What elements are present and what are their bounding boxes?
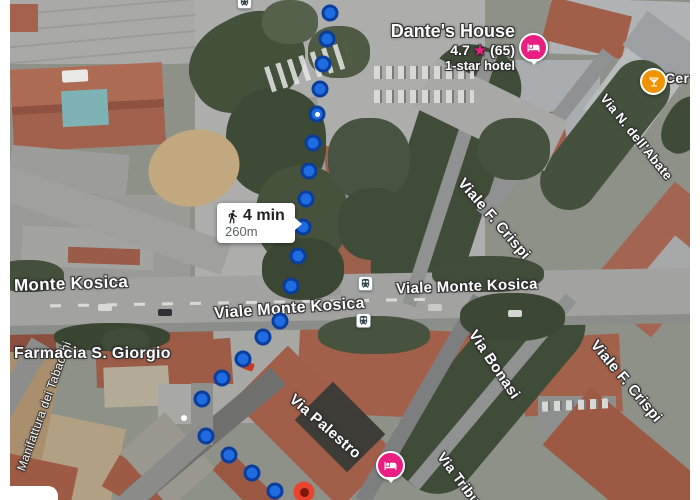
parking-cars xyxy=(374,90,474,103)
map-canvas[interactable]: Monte Kosica Viale Monte Kosica Viale Mo… xyxy=(10,0,690,500)
bed-icon xyxy=(384,459,397,472)
building-red-roof xyxy=(10,4,38,32)
route-duration: 4 min xyxy=(243,207,285,225)
route-distance: 260m xyxy=(225,225,285,239)
building-red-roof xyxy=(212,451,295,500)
train-icon xyxy=(360,278,371,289)
destination-marker[interactable] xyxy=(294,482,315,500)
street-label-monte-kosica: Monte Kosica xyxy=(14,272,129,296)
bar-pin-cer[interactable] xyxy=(640,68,667,95)
tree-cluster xyxy=(318,316,430,354)
car xyxy=(158,309,172,316)
van xyxy=(62,69,89,82)
tree-cluster xyxy=(262,0,318,44)
poi-label-cer[interactable]: Cer xyxy=(665,70,689,86)
transit-stop-icon[interactable] xyxy=(356,313,371,328)
walking-person-icon xyxy=(225,209,240,224)
building-teal-roof xyxy=(61,89,109,127)
train-icon xyxy=(358,315,369,326)
hotel-pin-via-palestro[interactable] xyxy=(376,451,405,480)
poi-label-farmacia-s-giorgio[interactable]: Farmacia S. Giorgio xyxy=(14,345,171,363)
poi-rating-line: 4.7 ★ (65) xyxy=(330,42,515,59)
partial-white-chip xyxy=(10,486,58,500)
poi-label-dantes-house[interactable]: Dante's House 4.7 ★ (65) 1-star hotel xyxy=(330,21,515,74)
tree-cluster xyxy=(478,118,550,180)
transit-stop-icon[interactable] xyxy=(358,276,373,291)
train-icon xyxy=(239,0,250,7)
building-red-roof xyxy=(68,247,141,266)
tooltip-duration-row: 4 min xyxy=(225,207,285,225)
poi-rating-value: 4.7 xyxy=(450,42,469,58)
tree-cluster xyxy=(262,238,344,300)
poi-review-count: (65) xyxy=(490,42,515,58)
maps-satellite-view: Monte Kosica Viale Monte Kosica Viale Mo… xyxy=(0,0,700,500)
hotel-pin-dantes-house[interactable] xyxy=(519,33,548,62)
car xyxy=(508,310,522,317)
bed-icon xyxy=(527,41,540,54)
tree-cluster xyxy=(338,188,410,260)
transit-stop-icon[interactable] xyxy=(237,0,252,9)
poi-name: Dante's House xyxy=(330,21,515,42)
cocktail-icon xyxy=(648,76,660,88)
car xyxy=(428,304,442,311)
poi-category: 1-star hotel xyxy=(330,58,515,74)
star-icon: ★ xyxy=(474,42,487,58)
route-time-tooltip[interactable]: 4 min 260m xyxy=(217,203,295,243)
car xyxy=(98,304,112,311)
small-white-dot xyxy=(181,415,187,421)
